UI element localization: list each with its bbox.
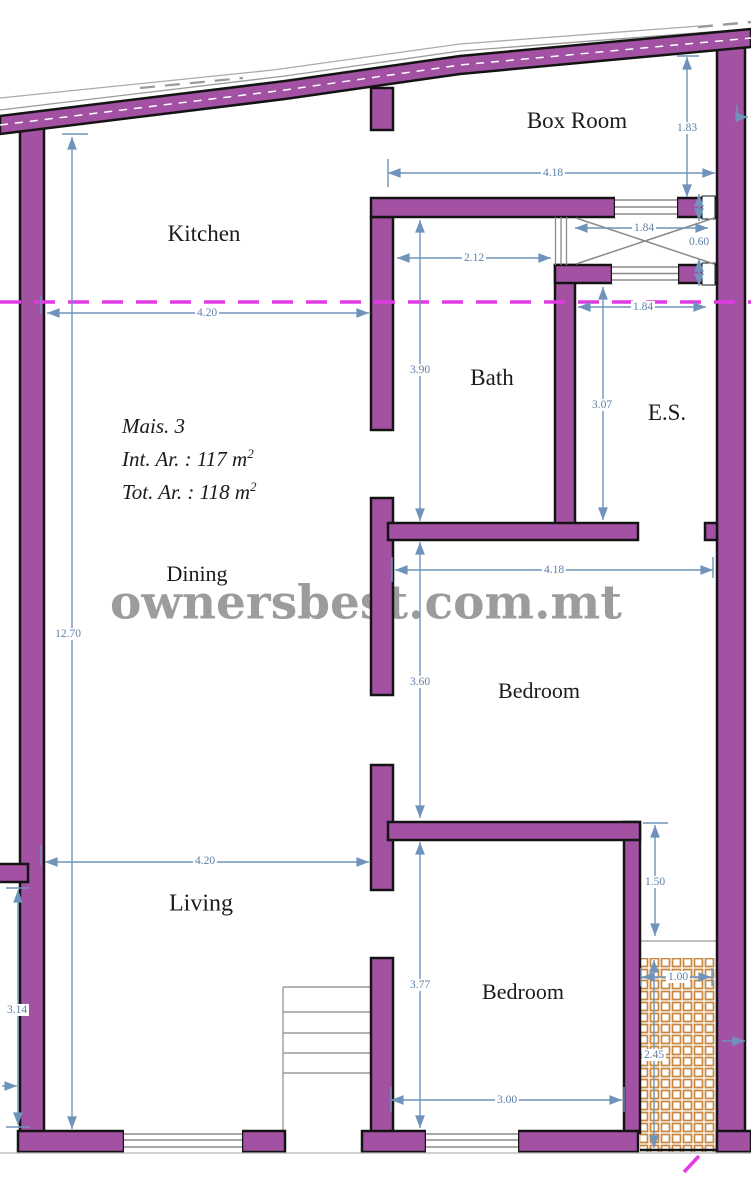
staircase [283,987,370,1131]
room-label-bath: Bath [470,365,513,391]
room-label-living: Living [169,891,233,918]
dim-yard-width: 1.00 [666,971,690,983]
area-note: Mais. 3 Int. Ar. : 117 m2 Tot. Ar. : 118… [122,412,256,506]
floor-plan-page: ownersbest.com.mt [0,0,751,1200]
floor-plan-canvas [0,0,751,1200]
dim-living-width: 4.20 [193,855,217,867]
dim-shaft-depth: 0.60 [687,236,711,248]
dim-bedroom-top-height: 3.60 [408,676,432,688]
area-note-internal: Int. Ar. : 117 m2 [122,440,256,473]
room-label-bedroom-bottom: Bedroom [482,979,564,1005]
dim-plan-height: 12.70 [53,628,83,640]
dim-living-height: 3.14 [5,1004,29,1016]
dim-bath-top-width: 2.12 [462,252,486,264]
room-label-dining: Dining [166,561,227,587]
dim-yard-height: 2.45 [642,1049,666,1061]
dim-bedroom-bottom-width: 3.00 [495,1094,519,1106]
dim-box-room-width: 4.18 [541,167,565,179]
dim-bath-height: 3.90 [408,364,432,376]
room-label-es: E.S. [648,400,686,426]
room-label-box-room: Box Room [527,108,627,134]
dim-bedroom-bottom-height: 3.77 [408,979,432,991]
area-note-total: Tot. Ar. : 118 m2 [122,473,256,506]
dim-bedroom-top-width: 4.18 [542,564,566,576]
room-label-bedroom-top: Bedroom [498,678,580,704]
dim-shaft-width-top: 1.84 [632,222,656,234]
dim-es-height: 3.07 [590,399,614,411]
dim-yard-offset: 1.50 [643,876,667,888]
area-note-title: Mais. 3 [122,412,256,440]
dim-box-room-height: 1.83 [675,122,699,134]
dim-kitchen-width: 4.20 [195,307,219,319]
room-label-kitchen: Kitchen [168,221,241,247]
dim-shaft-width-bottom: 1.84 [631,301,655,313]
